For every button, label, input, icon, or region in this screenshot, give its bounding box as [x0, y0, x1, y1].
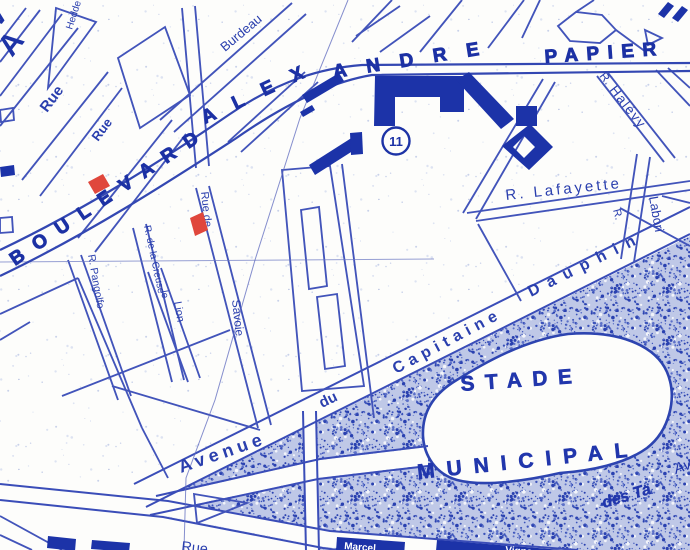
svg-text:11: 11	[389, 134, 403, 149]
svg-text:Rue: Rue	[181, 539, 209, 550]
svg-text:Marcel: Marcel	[344, 541, 377, 550]
